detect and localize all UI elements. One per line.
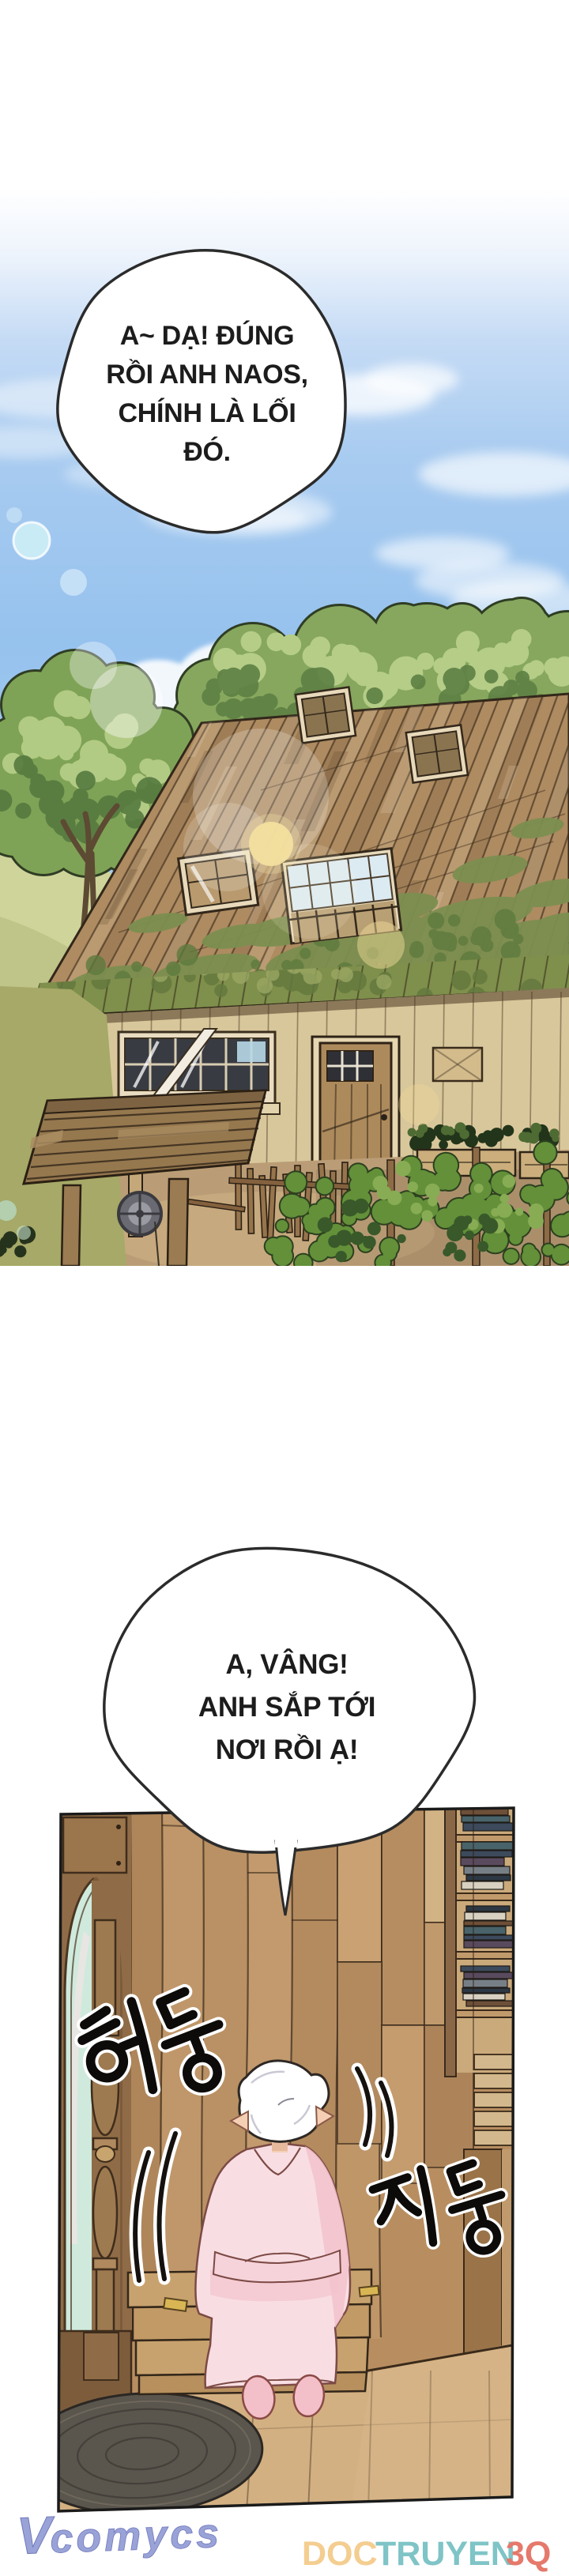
svg-text:NƠI RỒI Ạ!: NƠI RỒI Ạ! (216, 1734, 358, 1765)
svg-text:DOC: DOC (302, 2535, 378, 2573)
svg-text:RỒI ANH NAOS,: RỒI ANH NAOS, (106, 360, 308, 390)
svg-text:A~ DẠ! ĐÚNG: A~ DẠ! ĐÚNG (120, 321, 295, 351)
svg-text:CHÍNH LÀ LỐI: CHÍNH LÀ LỐI (119, 397, 296, 428)
svg-text:A, VÂNG!: A, VÂNG! (225, 1648, 348, 1680)
svg-text:ANH SẮP TỚI: ANH SẮP TỚI (198, 1691, 375, 1723)
svg-text:ĐÓ.: ĐÓ. (183, 437, 231, 467)
svg-text:TRUYEN: TRUYEN (375, 2535, 515, 2573)
svg-text:3Q: 3Q (506, 2535, 551, 2573)
svg-text:comycs: comycs (49, 2510, 223, 2563)
